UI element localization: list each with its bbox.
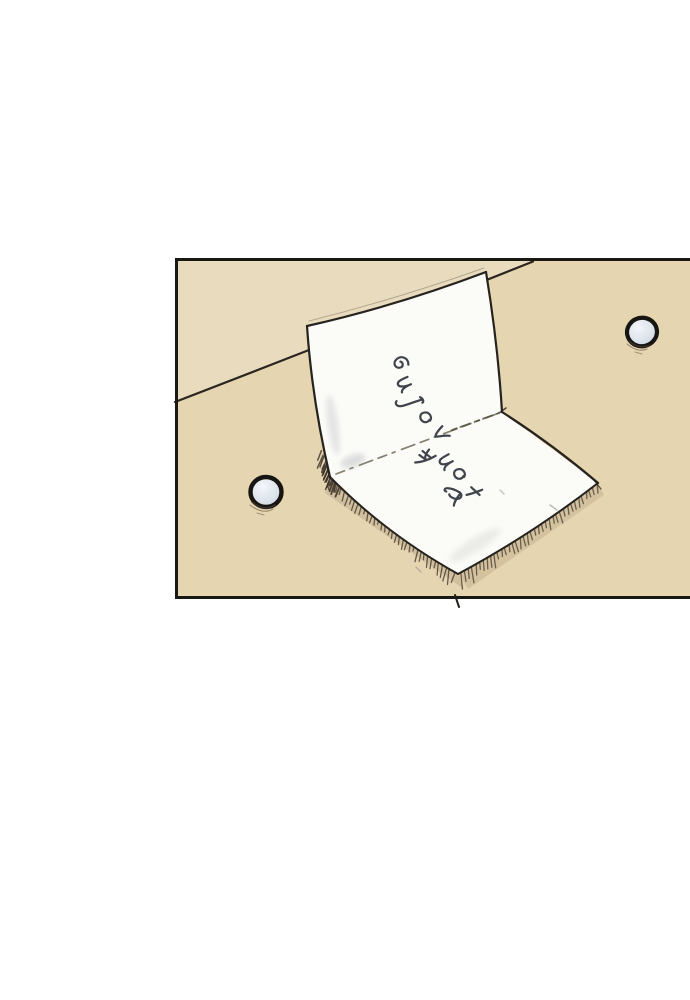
comic-panel xyxy=(0,0,690,1000)
comic-page xyxy=(0,0,690,1000)
